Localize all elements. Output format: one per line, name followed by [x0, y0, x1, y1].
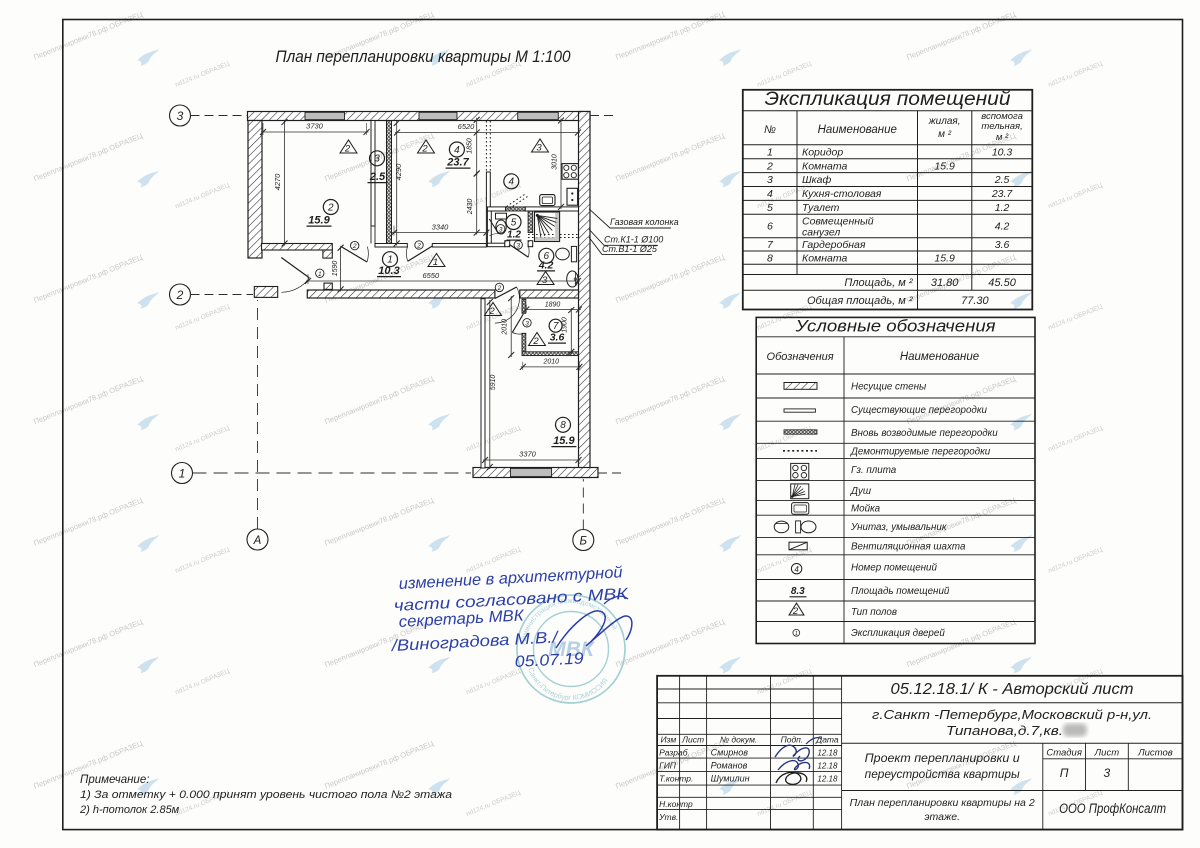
svg-text:23.7: 23.7 [991, 188, 1014, 200]
svg-text:2: 2 [497, 285, 502, 292]
svg-text:Унитаз, умывальник: Унитаз, умывальник [850, 522, 947, 533]
svg-text:1: 1 [318, 271, 322, 278]
svg-text:12.18: 12.18 [817, 762, 838, 771]
svg-text:Разраб.: Разраб. [659, 748, 690, 758]
svg-text:05.12.18.1/ К - Авторский лист: 05.12.18.1/ К - Авторский лист [891, 681, 1134, 698]
svg-text:Вновь возводимые перегородки: Вновь возводимые перегородки [851, 428, 998, 439]
svg-text:2010: 2010 [543, 359, 560, 366]
svg-text:этаже.: этаже. [924, 811, 960, 823]
svg-text:12.18: 12.18 [817, 749, 838, 758]
svg-text:Изм: Изм [660, 735, 676, 745]
svg-text:10.3: 10.3 [378, 265, 399, 277]
svg-text:77.30: 77.30 [961, 295, 989, 307]
svg-text:12.18: 12.18 [817, 775, 838, 784]
svg-text:2: 2 [792, 606, 799, 617]
svg-text:Утв.: Утв. [658, 812, 678, 822]
svg-text:3340: 3340 [432, 223, 450, 232]
svg-text:ООО ПрофКонсалт: ООО ПрофКонсалт [1059, 801, 1166, 816]
svg-text:Вентиляционная шахта: Вентиляционная шахта [851, 542, 966, 553]
svg-text:г.Санкт -Петербург,Московский: г.Санкт -Петербург,Московский р-н,ул. [872, 707, 1152, 722]
svg-text:6550: 6550 [422, 271, 440, 280]
svg-text:А: А [253, 535, 262, 547]
svg-text:Туалет: Туалет [802, 202, 840, 214]
svg-text:1) За отметку + 0.000 принят у: 1) За отметку + 0.000 принят уровень чис… [80, 789, 452, 801]
svg-text:Романов: Романов [711, 761, 748, 771]
svg-text:Газовая колонка: Газовая колонка [610, 217, 679, 227]
svg-text:Наименование: Наименование [900, 351, 979, 363]
svg-text:Душ: Душ [850, 486, 871, 497]
svg-text:Общая площадь, м ²: Общая площадь, м ² [807, 295, 913, 307]
svg-text:Номер помещений: Номер помещений [851, 563, 937, 574]
svg-text:4290: 4290 [394, 163, 403, 181]
svg-text:15.9: 15.9 [934, 252, 955, 264]
svg-text:Обозначения: Обозначения [767, 351, 834, 363]
svg-text:6520: 6520 [458, 122, 476, 131]
svg-text:Демонтируемые перегородки: Демонтируемые перегородки [850, 446, 991, 457]
svg-text:2010: 2010 [501, 319, 508, 336]
svg-text:2: 2 [176, 288, 184, 302]
svg-text:Н.контр: Н.контр [659, 799, 693, 809]
svg-text:4: 4 [794, 565, 799, 574]
svg-text:ГИП: ГИП [659, 761, 677, 771]
svg-text:4.2: 4.2 [538, 259, 554, 271]
svg-text:1.2: 1.2 [995, 202, 1010, 214]
svg-text:3370: 3370 [519, 450, 537, 459]
svg-text:Площадь помещений: Площадь помещений [851, 586, 950, 597]
svg-text:Т.контр.: Т.контр. [659, 774, 693, 784]
svg-text:3: 3 [516, 243, 520, 250]
svg-text:1: 1 [433, 257, 438, 268]
svg-text:5910: 5910 [490, 375, 497, 391]
svg-text:15.9: 15.9 [553, 435, 575, 447]
svg-text:тельная,: тельная, [981, 121, 1022, 132]
svg-text:1900: 1900 [562, 317, 569, 333]
svg-text:Стадия: Стадия [1046, 748, 1082, 759]
svg-text:Комната: Комната [802, 160, 847, 172]
svg-text:6: 6 [767, 221, 773, 233]
svg-text:3: 3 [767, 174, 773, 186]
svg-text:Б: Б [580, 536, 588, 548]
svg-text:3: 3 [177, 109, 184, 123]
svg-text:Кухня-столовая: Кухня-столовая [802, 188, 882, 200]
svg-text:3: 3 [525, 320, 529, 327]
svg-text:м ²: м ² [938, 129, 952, 140]
svg-text:3: 3 [1104, 766, 1111, 780]
svg-text:3: 3 [374, 154, 380, 165]
svg-text:1590: 1590 [332, 261, 339, 277]
svg-text:23.7: 23.7 [446, 157, 469, 169]
svg-text:4.2: 4.2 [995, 221, 1010, 233]
svg-text:1850: 1850 [466, 138, 473, 154]
svg-text:8: 8 [767, 252, 773, 264]
svg-text:3: 3 [536, 143, 542, 154]
svg-text:Подп.: Подп. [781, 735, 804, 745]
svg-text:1: 1 [387, 255, 393, 266]
svg-text:3: 3 [542, 275, 548, 286]
svg-text:2: 2 [766, 160, 773, 172]
svg-text:2: 2 [344, 144, 351, 155]
svg-text:31.80: 31.80 [931, 277, 959, 289]
svg-text:4: 4 [454, 145, 460, 156]
svg-text:2: 2 [416, 243, 421, 250]
svg-text:2.5: 2.5 [369, 171, 386, 183]
svg-text:2: 2 [327, 202, 334, 213]
svg-text:План перепланировки квартиры М: План перепланировки квартиры М 1:100 [276, 48, 572, 66]
svg-text:1890: 1890 [545, 302, 561, 309]
svg-text:Экспликация дверей: Экспликация дверей [851, 628, 945, 639]
svg-text:переустройства квартиры: переустройства квартиры [865, 769, 1021, 781]
svg-text:2.5: 2.5 [994, 174, 1010, 186]
svg-text:3.6: 3.6 [995, 239, 1010, 251]
svg-text:м ²: м ² [996, 132, 1009, 143]
svg-text:Листов: Листов [1137, 748, 1173, 759]
svg-text:45.50: 45.50 [988, 277, 1016, 289]
svg-text:жилая,: жилая, [928, 116, 961, 127]
svg-text:Тип полов: Тип полов [851, 607, 897, 618]
svg-text:7: 7 [553, 321, 559, 332]
svg-text:4: 4 [509, 177, 515, 188]
svg-text:2: 2 [421, 144, 428, 155]
svg-text:Наименование: Наименование [818, 124, 897, 136]
svg-text:Коридор: Коридор [802, 146, 843, 158]
svg-text:Проект перепланировки и: Проект перепланировки и [865, 753, 1021, 765]
svg-text:Гардеробная: Гардеробная [802, 239, 866, 251]
svg-text:3010: 3010 [552, 154, 559, 170]
svg-text:Ст.В1-1 Ø25: Ст.В1-1 Ø25 [602, 244, 658, 254]
svg-text:Экспликация помещений: Экспликация помещений [765, 88, 1011, 110]
svg-text:Площадь, м ²: Площадь, м ² [844, 277, 912, 289]
svg-text:2) h-потолок 2.85м: 2) h-потолок 2.85м [79, 804, 180, 816]
svg-text:2: 2 [532, 336, 539, 347]
svg-text:05.07.19: 05.07.19 [514, 650, 584, 671]
svg-text:санузел: санузел [802, 227, 840, 239]
svg-text:5: 5 [767, 202, 773, 214]
svg-text:15.9: 15.9 [934, 160, 955, 172]
svg-text:№ докум.: № докум. [720, 735, 757, 745]
svg-text:Существующие перегородки: Существующие перегородки [851, 405, 987, 416]
svg-text:Примечание:: Примечание: [80, 774, 149, 786]
svg-text:Гз. плита: Гз. плита [851, 465, 897, 476]
svg-text:Комната: Комната [802, 252, 847, 264]
svg-text:4: 4 [767, 188, 773, 200]
svg-text:3730: 3730 [306, 122, 324, 131]
svg-text:Дата: Дата [815, 735, 839, 745]
svg-text:План перепланировки квартиры н: План перепланировки квартиры на 2 [850, 797, 1035, 809]
svg-text:1: 1 [767, 146, 773, 158]
svg-text:10.3: 10.3 [992, 146, 1013, 158]
svg-text:Шкаф: Шкаф [802, 174, 831, 186]
svg-text:8: 8 [560, 420, 566, 431]
svg-text:1: 1 [179, 467, 186, 481]
svg-text:Несущие стены: Несущие стены [851, 382, 927, 393]
svg-text:1: 1 [795, 631, 798, 637]
svg-text:2430: 2430 [467, 199, 474, 216]
svg-text:Мойка: Мойка [851, 503, 881, 514]
svg-text:№: № [764, 124, 776, 136]
svg-text:Шумилин: Шумилин [711, 774, 750, 784]
svg-text:Типанова,д.7,кв.: Типанова,д.7,кв. [946, 723, 1063, 738]
svg-text:2: 2 [352, 243, 357, 250]
svg-text:1.2: 1.2 [507, 230, 521, 241]
svg-text:4270: 4270 [273, 173, 282, 191]
svg-text:Лист: Лист [1094, 748, 1120, 759]
svg-text:Лист: Лист [681, 735, 704, 745]
svg-text:8.3: 8.3 [791, 586, 805, 597]
svg-text:3: 3 [499, 226, 503, 233]
svg-text:Смирнов: Смирнов [711, 748, 749, 758]
svg-text:5: 5 [511, 217, 517, 228]
svg-text:Условные обозначения: Условные обозначения [794, 318, 995, 336]
svg-text:П: П [1060, 766, 1069, 780]
svg-text:15.9: 15.9 [308, 215, 330, 227]
